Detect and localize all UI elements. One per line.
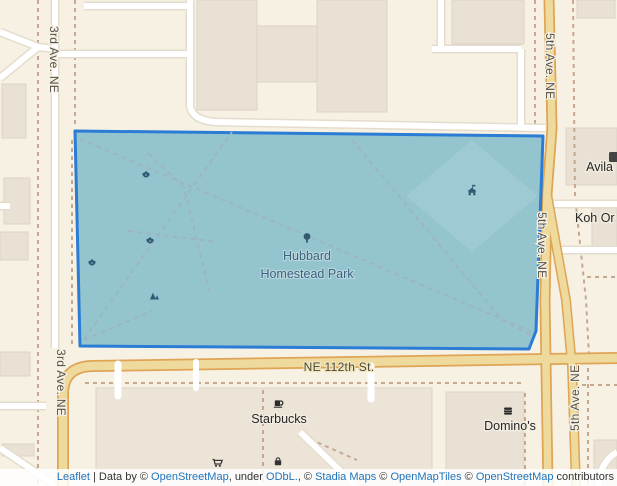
openmaptiles-link[interactable]: OpenMapTiles xyxy=(390,471,461,483)
park-label-line1: Hubbard xyxy=(283,249,331,263)
odbl-link[interactable]: ODbL. xyxy=(266,471,298,483)
attribution-text: | Data by © xyxy=(90,471,151,483)
park-area[interactable] xyxy=(75,131,543,349)
stadia-link[interactable]: Stadia Maps xyxy=(315,471,376,483)
osm-link[interactable]: OpenStreetMap xyxy=(151,471,229,483)
street-label-5th-ave-bottom: 5th Ave. NE xyxy=(568,365,582,431)
street-label-ne-112th: NE 112th St. xyxy=(304,360,375,374)
attribution-bar: Leaflet | Data by © OpenStreetMap, under… xyxy=(0,469,617,486)
leaflet-link[interactable]: Leaflet xyxy=(57,471,90,483)
osm-contributors-link[interactable]: OpenStreetMap xyxy=(476,471,554,483)
map-container[interactable]: 3rd Ave. NE 3rd Ave. NE 5th Ave. NE 5th … xyxy=(0,0,617,486)
attribution-text: , © xyxy=(298,471,315,483)
street-label-5th-ave-top: 5th Ave. NE xyxy=(543,33,557,99)
poi-label-dominos: Domino's xyxy=(484,419,536,433)
park-label-line2: Homestead Park xyxy=(260,267,354,281)
street-label-3rd-ave-bottom: 3rd Ave. NE xyxy=(54,349,68,416)
attribution-text: contributors xyxy=(553,471,614,483)
street-label-3rd-ave-top: 3rd Ave. NE xyxy=(47,26,61,93)
poi-label-koh: Koh Or xyxy=(575,211,615,225)
attribution-text: © xyxy=(462,471,476,483)
fast-food-icon xyxy=(504,408,512,415)
attribution-text: © xyxy=(376,471,390,483)
map-canvas[interactable]: 3rd Ave. NE 3rd Ave. NE 5th Ave. NE 5th … xyxy=(0,0,617,486)
attribution-text: , under xyxy=(229,471,266,483)
poi-label-starbucks: Starbucks xyxy=(251,412,307,426)
street-label-5th-ave-mid: 5th Ave. NE xyxy=(535,212,549,278)
poi-label-avila: Avila xyxy=(586,160,613,174)
